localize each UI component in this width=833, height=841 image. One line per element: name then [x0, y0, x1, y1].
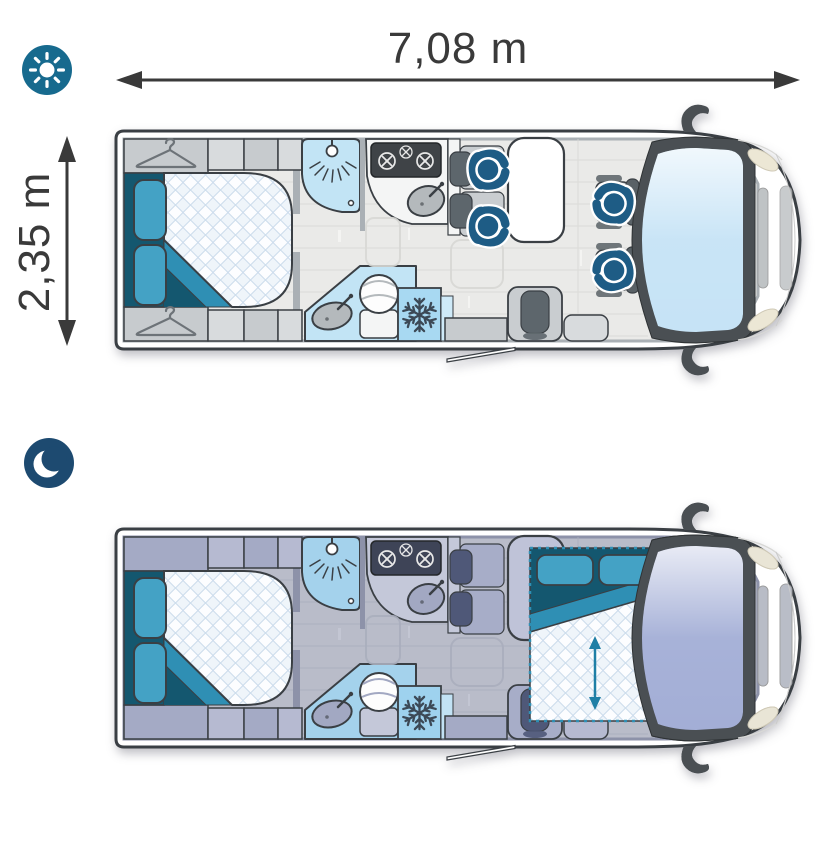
- motorhome-floorplan-page: 7,08 m 2,35 m: [0, 0, 833, 841]
- width-dimension-arrow: [49, 132, 85, 350]
- pillow: [537, 555, 593, 585]
- moon-icon: [23, 437, 75, 489]
- passenger-figure: [466, 148, 507, 192]
- day-floorplan: [108, 100, 808, 385]
- length-dimension-arrow: [112, 62, 804, 98]
- passenger-figure: [466, 204, 507, 248]
- night-floorplan: [108, 498, 808, 783]
- sun-icon: [21, 44, 73, 96]
